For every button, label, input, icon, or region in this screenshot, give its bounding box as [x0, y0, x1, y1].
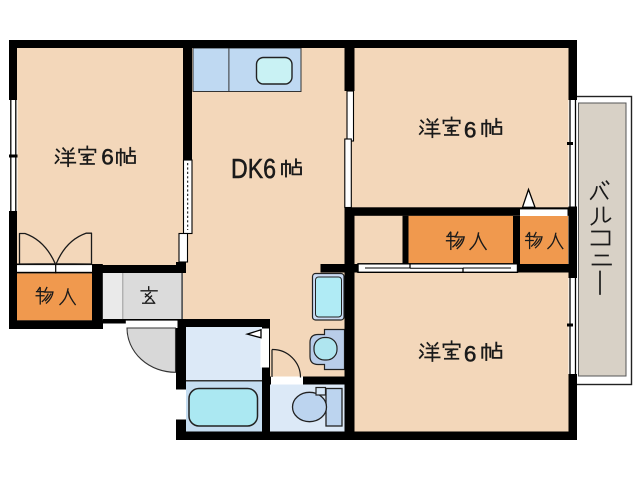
svg-text:6: 6	[464, 117, 477, 142]
svg-text:6: 6	[101, 145, 114, 170]
svg-text:6: 6	[464, 341, 477, 366]
svg-text:DK6: DK6	[231, 153, 276, 184]
